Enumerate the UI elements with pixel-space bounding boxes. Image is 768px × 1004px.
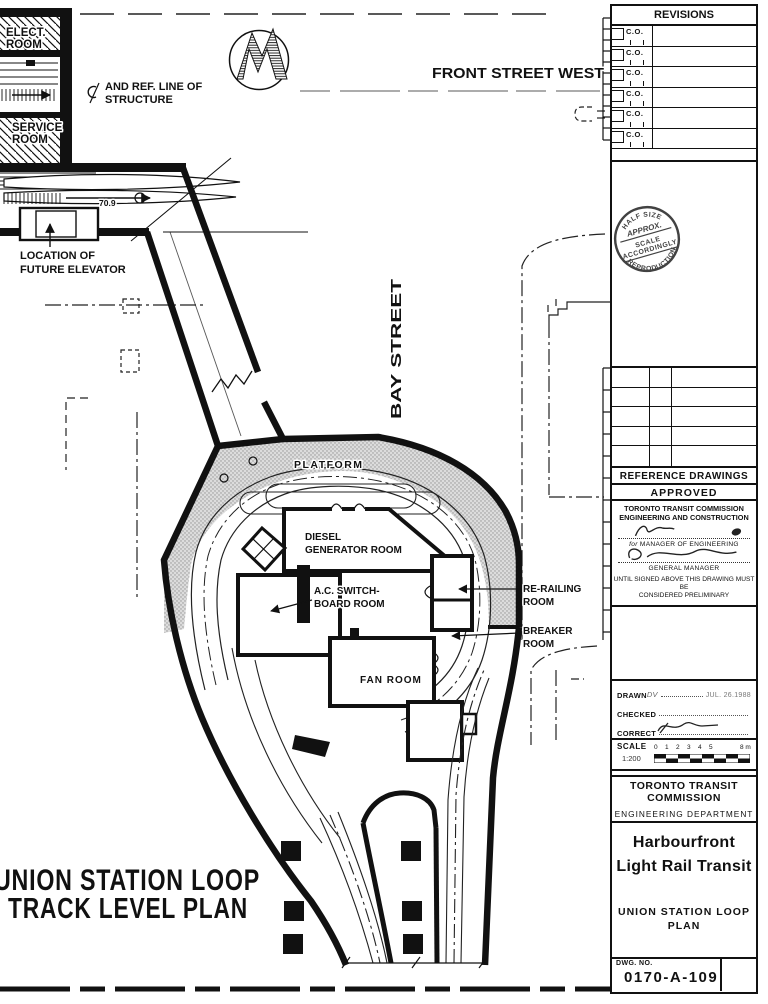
revision-row: C.O. [612, 88, 756, 109]
elect-room-label2: ROOM [6, 39, 42, 51]
revision-notch [612, 28, 624, 40]
diesel-room-label2: GENERATOR ROOM [305, 545, 402, 556]
grid-cell [672, 368, 756, 388]
project-name-line1: Harbourfront [612, 831, 756, 855]
grid-cell [650, 368, 672, 388]
grid-cell [650, 388, 672, 408]
escalator-ticks-lower [4, 193, 60, 204]
switchboard-room-label: A.C. SWITCH- [314, 586, 380, 597]
revision-notch [612, 110, 624, 122]
grid-cell [612, 446, 650, 466]
ref-line-label: AND REF. LINE OF [105, 81, 202, 93]
bay-street-label: BAY STREET [388, 279, 405, 419]
revision-divider [652, 47, 653, 67]
concourse [0, 158, 308, 247]
grid-cell [650, 407, 672, 427]
revision-ticks [630, 40, 644, 45]
org-name-line1: TORONTO TRANSIT [612, 780, 756, 792]
revision-row: C.O. [612, 129, 756, 150]
scale-bar [654, 754, 750, 763]
future-elevator-label2: FUTURE ELEVATOR [20, 264, 126, 276]
grid-cell [650, 427, 672, 447]
revision-ticks [630, 142, 644, 147]
drawing-sheet: ELECT. ROOM SERVICE ROOM AND REF. LINE O… [0, 0, 768, 1004]
dwg-no-label: DWG. NO. [616, 960, 653, 967]
revision-ticks [630, 81, 644, 86]
half-size-stamp: HALF SIZE APPROX. SCALE ACCORDINGLY REPR… [604, 196, 691, 283]
project-block: Harbourfront Light Rail Transit UNION ST… [612, 823, 756, 959]
engineering-signature-row: for MANAGER OF ENGINEERING [618, 522, 750, 546]
dwg-divider [720, 959, 722, 991]
revision-row: C.O. [612, 108, 756, 129]
plan-drawing: ELECT. ROOM SERVICE ROOM AND REF. LINE O… [0, 0, 612, 1004]
scale-tick: 0 [654, 744, 658, 751]
fan-room-label: FAN ROOM [360, 675, 422, 686]
correct-signature-scribble [654, 717, 724, 737]
rerailing-room-label: RE-RAILING [523, 584, 582, 595]
revision-co-label: C.O. [626, 68, 643, 77]
grid-cell [672, 427, 756, 447]
revision-row: C.O. [612, 26, 756, 47]
scale-tick-labels: 0 1 2 3 4 5 8 m [654, 744, 754, 752]
checked-label: CHECKED [617, 710, 656, 719]
signature-line [618, 538, 750, 539]
revision-divider [652, 108, 653, 128]
diesel-room-label: DIESEL [305, 532, 341, 543]
scale-ratio: 1:200 [622, 754, 641, 763]
sheet-title-line2: PLAN [612, 919, 756, 933]
grid-cell [612, 427, 650, 447]
grid-cell [612, 368, 650, 388]
project-name-line2: Light Rail Transit [612, 855, 756, 879]
front-street-label: FRONT STREET WEST [432, 65, 604, 82]
revision-co-label: C.O. [626, 48, 643, 57]
scale-tick: 2 [676, 744, 680, 751]
revision-divider [652, 88, 653, 108]
correct-row: CORRECT [612, 719, 756, 738]
revision-divider [652, 26, 653, 46]
tunnel-walls [147, 168, 283, 446]
correct-label: CORRECT [617, 729, 656, 738]
organization-block: TORONTO TRANSIT COMMISSION ENGINEERING D… [612, 777, 756, 823]
plan-labels: ELECT. ROOM SERVICE ROOM AND REF. LINE O… [0, 27, 604, 925]
signature-line [618, 562, 750, 563]
scale-tick: 4 [698, 744, 702, 751]
revision-row: C.O. [612, 47, 756, 68]
grid-cell [612, 407, 650, 427]
drawn-value: DV [647, 690, 658, 699]
rerailing-room-label2: ROOM [523, 597, 554, 608]
north-arrow-icon [230, 29, 289, 90]
approval-block: TORONTO TRANSIT COMMISSION ENGINEERING A… [612, 501, 756, 607]
grid-cell [672, 446, 756, 466]
revision-row: C.O. [612, 67, 756, 88]
grid-cell [650, 446, 672, 466]
revision-notch [612, 131, 624, 143]
revision-ticks [630, 122, 644, 127]
switchboard-room-label2: BOARD ROOM [314, 599, 385, 610]
centerline-symbol [88, 83, 99, 103]
title-block: REVISIONS C.O. C.O. C.O. C.O. C.O. C.O. … [610, 4, 758, 994]
scale-label: SCALE [617, 742, 647, 751]
grid-cell [672, 407, 756, 427]
revisions-block: REVISIONS C.O. C.O. C.O. C.O. C.O. C.O. [612, 6, 756, 162]
breaker-room-label: BREAKER [523, 626, 573, 637]
general-manager-signature-row: GENERAL MANAGER [618, 546, 750, 570]
future-elevator-label: LOCATION OF [20, 250, 95, 262]
grid-cell [672, 388, 756, 408]
dwg-number: 0170-A-109 [624, 969, 718, 986]
revision-divider [652, 129, 653, 149]
approved-header: APPROVED [612, 485, 756, 501]
org-name-line2: COMMISSION [612, 792, 756, 804]
revision-co-label: C.O. [626, 89, 643, 98]
scale-tick: 1 [665, 744, 669, 751]
revision-notch [612, 49, 624, 61]
issue-block: DRAWN DV JUL. 26.1988 CHECKED CORRECT [612, 681, 756, 740]
revision-notch [612, 90, 624, 102]
revision-ticks [630, 101, 644, 106]
scale-tick: 5 [709, 744, 713, 751]
ref-line-label2: STRUCTURE [105, 94, 173, 106]
revision-co-label: C.O. [626, 130, 643, 139]
dotted-leader [659, 715, 748, 716]
revision-divider [652, 67, 653, 87]
service-room-label: SERVICE [12, 122, 63, 134]
drawing-number-block: DWG. NO. 0170-A-109 [612, 959, 756, 991]
preliminary-note-line1: UNTIL SIGNED ABOVE THIS DRAWING MUST BE [612, 576, 756, 592]
breaker-room-label2: ROOM [523, 639, 554, 650]
preliminary-note-line2: CONSIDERED PRELIMINARY [612, 592, 756, 600]
sheet-title-line1: UNION STATION LOOP [612, 905, 756, 919]
spot-elevation: 70.9 [99, 198, 116, 208]
elect-room-label: ELECT. [6, 27, 46, 39]
drawn-label: DRAWN [617, 691, 647, 700]
general-manager-role: GENERAL MANAGER [649, 565, 720, 572]
revision-co-label: C.O. [626, 27, 643, 36]
grid-cell [612, 388, 650, 408]
revision-notch [612, 69, 624, 81]
drawn-row: DRAWN DV JUL. 26.1988 [612, 681, 756, 700]
drawn-date: JUL. 26.1988 [706, 692, 751, 699]
reference-drawings-grid [612, 366, 756, 468]
dotted-leader [661, 696, 703, 697]
revision-co-label: C.O. [626, 109, 643, 118]
scale-end-label: 8 m [740, 744, 751, 751]
org-department: ENGINEERING DEPARTMENT [612, 809, 756, 819]
scale-block: SCALE 1:200 0 1 2 3 4 5 8 m [612, 740, 756, 771]
scale-tick: 3 [687, 744, 691, 751]
reference-drawings-header: REFERENCE DRAWINGS [612, 468, 756, 485]
revisions-header: REVISIONS [612, 6, 756, 26]
revision-ticks [630, 60, 644, 65]
empty-box [612, 607, 756, 681]
platform-label: PLATFORM [294, 459, 364, 471]
service-room-label2: ROOM [12, 134, 48, 146]
drawing-title-line2: TRACK LEVEL PLAN [8, 893, 248, 925]
